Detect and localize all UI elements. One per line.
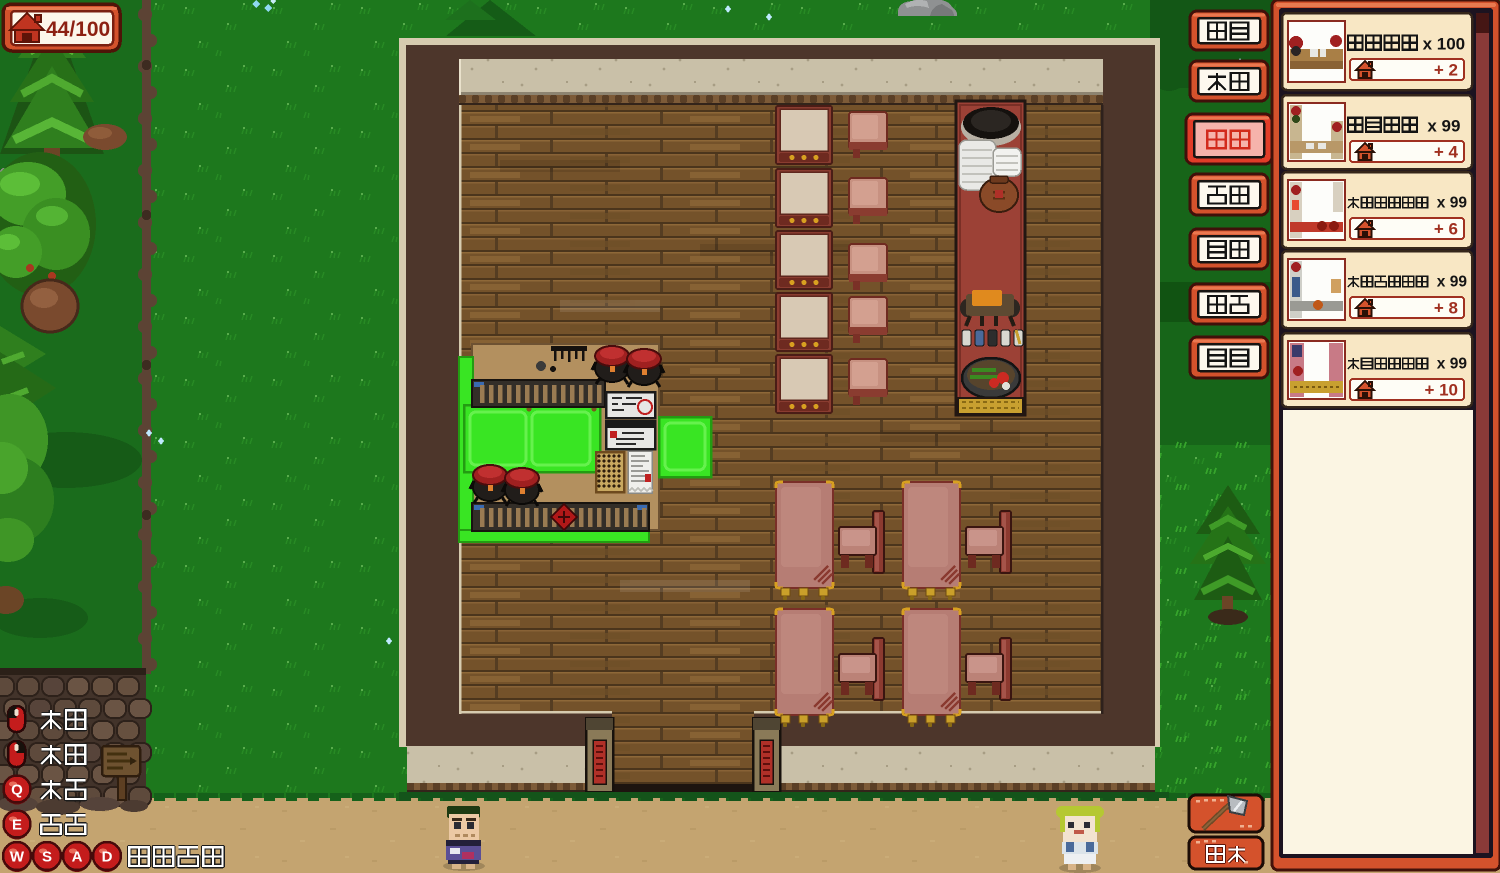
svg-text:x 99: x 99 (1433, 356, 1468, 373)
svg-text:+ 10: + 10 (1424, 381, 1458, 400)
svg-text:E: E (12, 817, 22, 834)
svg-text:x 99: x 99 (1433, 274, 1468, 291)
svg-text:x 99: x 99 (1433, 195, 1468, 212)
svg-text:A: A (72, 849, 83, 866)
svg-text:Q: Q (11, 782, 23, 799)
svg-text:44/100: 44/100 (46, 18, 110, 41)
svg-text:x 100: x 100 (1423, 35, 1466, 54)
svg-text:S: S (42, 849, 52, 866)
svg-text:x 99: x 99 (1423, 117, 1461, 136)
svg-text:+ 4: + 4 (1434, 143, 1459, 162)
svg-text:+ 8: + 8 (1434, 299, 1458, 318)
svg-text:+ 6: + 6 (1434, 220, 1458, 239)
svg-text:+ 2: + 2 (1434, 61, 1458, 80)
svg-text:D: D (102, 849, 113, 866)
svg-text:W: W (10, 849, 25, 866)
